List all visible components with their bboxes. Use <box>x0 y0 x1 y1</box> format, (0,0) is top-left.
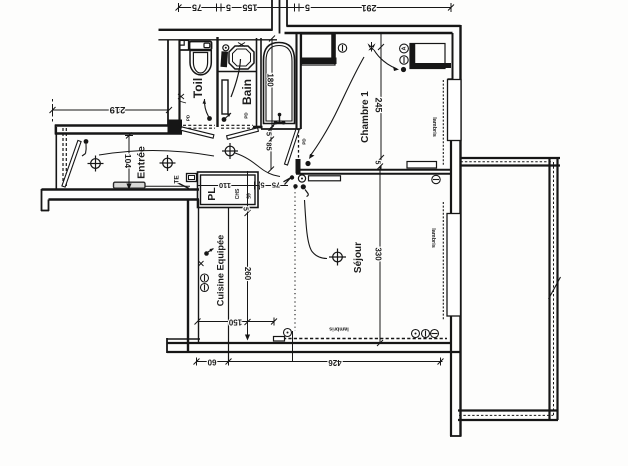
svg-text:155: 155 <box>242 3 257 13</box>
svg-text:PL: PL <box>206 187 218 201</box>
svg-text:PD: PD <box>302 138 307 145</box>
svg-text:TE: TE <box>174 175 181 184</box>
svg-text:219: 219 <box>110 104 126 115</box>
svg-text:5: 5 <box>305 3 310 13</box>
svg-text:5: 5 <box>374 161 381 165</box>
svg-text:85: 85 <box>265 142 274 150</box>
svg-text:291: 291 <box>361 3 376 13</box>
svg-text:5: 5 <box>242 207 249 211</box>
svg-text:Toil: Toil <box>191 78 205 98</box>
svg-text:Chambre 1: Chambre 1 <box>360 91 371 143</box>
svg-text:Bain: Bain <box>240 79 254 105</box>
svg-text:150: 150 <box>228 317 242 326</box>
svg-text:104: 104 <box>123 154 133 168</box>
svg-text:lambris: lambris <box>430 228 436 248</box>
svg-text:5: 5 <box>265 132 274 136</box>
svg-text:lambris: lambris <box>431 117 437 137</box>
svg-text:75: 75 <box>272 181 280 190</box>
svg-text:245: 245 <box>373 97 383 112</box>
svg-text:60: 60 <box>207 357 216 366</box>
svg-text:426: 426 <box>328 358 342 367</box>
svg-text:260: 260 <box>243 267 252 281</box>
svg-text:5: 5 <box>226 3 231 13</box>
svg-text:5: 5 <box>260 181 264 190</box>
svg-text:A: A <box>401 46 407 50</box>
svg-text:180: 180 <box>265 73 274 87</box>
svg-text:PD: PD <box>244 112 249 119</box>
svg-text:Cuisine Equipée: Cuisine Equipée <box>215 235 225 306</box>
svg-text:Séjour: Séjour <box>353 242 364 273</box>
svg-text:CHS: CHS <box>235 188 241 199</box>
svg-text:330: 330 <box>373 247 382 261</box>
svg-text:lambris: lambris <box>329 326 349 332</box>
svg-text:110: 110 <box>219 181 231 190</box>
svg-text:PD: PD <box>186 114 191 121</box>
svg-text:75: 75 <box>192 3 202 13</box>
